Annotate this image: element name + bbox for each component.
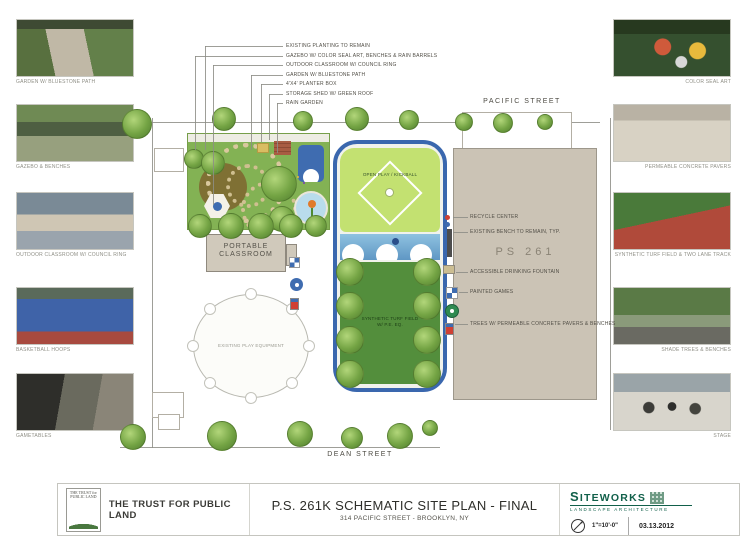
photo-gametables: GAMETABLES: [16, 373, 134, 439]
site-plan-sheet: GARDEN W/ BLUESTONE PATH GAZEBO & BENCHE…: [0, 0, 747, 560]
photo-thumbnail: [613, 373, 731, 431]
play-border-scallop: [245, 288, 257, 300]
street-tree-icon: [399, 110, 419, 130]
field-tree-icon: [413, 258, 441, 286]
wave-mural: [340, 234, 440, 260]
leader-line: [205, 46, 206, 150]
play-border-scallop: [204, 377, 216, 389]
street-tree-icon: [207, 421, 237, 451]
photo-thumbnail: [613, 19, 731, 77]
existing-structure-outline: [154, 148, 184, 172]
photo-caption: SHADE TREES & BENCHES: [613, 347, 731, 353]
street-tree-icon: [212, 107, 236, 131]
photo-caption: BASKETBALL HOOPS: [16, 347, 134, 353]
photo-turf-track: SYNTHETIC TURF FIELD & TWO LANE TRACK: [613, 192, 731, 258]
street-tree-icon: [493, 113, 513, 133]
leader-line: [205, 46, 283, 47]
firm-rule: [570, 505, 692, 506]
photo-caption: OUTDOOR CLASSROOM W/ COUNCIL RING: [16, 252, 134, 258]
color-seal-slide-icon: [298, 145, 324, 182]
photo-gazebo-benches: GAZEBO & BENCHES: [16, 104, 134, 170]
portable-classroom-label: PORTABLE CLASSROOM: [206, 243, 286, 260]
sheet-subtitle: 314 PACIFIC STREET - BROOKLYN, NY: [340, 515, 469, 522]
street-tree-icon: [287, 421, 313, 447]
drinking-fountain-icon: [443, 265, 455, 274]
photo-thumbnail: [613, 192, 731, 250]
callout-trees-pavers: TREES W/ PERMEABLE CONCRETE PAVERS & BEN…: [470, 321, 616, 327]
leader-line: [459, 292, 468, 293]
photo-basketball-hoops: BASKETBALL HOOPS: [16, 287, 134, 353]
garden-tree-icon: [248, 213, 274, 239]
play-border-scallop: [204, 303, 216, 315]
garden-tree-icon: [305, 215, 327, 237]
pitcher-circle: [385, 188, 394, 197]
painted-game-checker-icon: [289, 257, 300, 268]
photo-caption: SYNTHETIC TURF FIELD & TWO LANE TRACK: [613, 252, 731, 258]
photo-permeable-pavers: PERMEABLE CONCRETE PAVERS: [613, 104, 731, 170]
painted-game-hopscotch-icon: [290, 298, 299, 310]
street-tree-icon: [345, 107, 369, 131]
painted-game-compass-icon: [445, 304, 459, 318]
logo-text: THE TRUST for PUBLIC LAND: [67, 489, 100, 501]
street-tree-icon: [120, 424, 146, 450]
firm-name: SITEWORKS: [570, 489, 646, 504]
callout-painted-games: PAINTED GAMES: [470, 289, 513, 295]
photo-caption: STAGE: [613, 433, 731, 439]
field-tree-icon: [336, 360, 364, 388]
photo-thumbnail: [16, 373, 134, 431]
divider: [628, 517, 629, 535]
dean-street-curb-line: [120, 447, 440, 448]
leader-line: [277, 103, 278, 153]
school-building-label: PS 261: [478, 246, 573, 258]
field-tree-icon: [336, 258, 364, 286]
garden-tree-icon: [218, 213, 244, 239]
north-arrow-icon: [570, 518, 586, 534]
sheet-title: P.S. 261K SCHEMATIC SITE PLAN - FINAL: [272, 498, 538, 513]
leader-line: [456, 272, 468, 273]
firm-section: SITEWORKS LANDSCAPE ARCHITECTURE 1"=10'-…: [559, 484, 739, 535]
field-tree-icon: [413, 292, 441, 320]
recycle-center-icon: [447, 229, 452, 257]
callout-garden-path: GARDEN W/ BLUESTONE PATH: [286, 72, 365, 78]
callout-planter-box: 4'X4' PLANTER BOX: [286, 81, 337, 87]
leader-line: [195, 56, 283, 57]
leader-line: [213, 65, 283, 66]
callout-recycle-center: RECYCLE CENTER: [470, 214, 518, 220]
callout-gazebo: GAZEBO W/ COLOR SEAL ART, BENCHES & RAIN…: [286, 53, 437, 59]
callout-drinking-fountain: ACCESSIBLE DRINKING FOUNTAIN: [470, 269, 559, 275]
leader-line: [261, 84, 283, 85]
street-tree-icon: [341, 427, 363, 449]
leader-line: [213, 65, 214, 205]
field-tree-icon: [336, 292, 364, 320]
scale-text: 1"=10'-0": [592, 523, 618, 529]
garden-tree-icon: [188, 214, 212, 238]
photo-thumbnail: [16, 192, 134, 250]
flower-icon: [308, 200, 316, 208]
date-text: 03.13.2012: [639, 523, 674, 530]
building-wing-outline: [462, 112, 572, 150]
existing-play-label: EXISTING PLAY EQUIPMENT: [196, 343, 306, 348]
garden-tree-icon: [261, 166, 297, 202]
dean-street-label: DEAN STREET: [310, 451, 410, 458]
property-line-east: [610, 118, 611, 430]
leader-line: [195, 56, 196, 150]
photo-outdoor-classroom: OUTDOOR CLASSROOM W/ COUNCIL RING: [16, 192, 134, 258]
photo-thumbnail: [16, 104, 134, 162]
callout-existing-planting: EXISTING PLANTING TO REMAIN: [286, 43, 370, 49]
gazebo-center: [213, 202, 222, 211]
painted-game-hopscotch-icon: [445, 323, 454, 335]
photo-shade-trees: SHADE TREES & BENCHES: [613, 287, 731, 353]
site-marker-blue-icon: [445, 222, 450, 227]
street-tree-icon: [537, 114, 553, 130]
pacific-street-label: PACIFIC STREET: [462, 98, 582, 105]
photo-caption: PERMEABLE CONCRETE PAVERS: [613, 164, 731, 170]
leader-line: [453, 232, 468, 233]
client-section: THE TRUST for PUBLIC LAND THE TRUST FOR …: [58, 484, 250, 535]
callout-storage-shed: STORAGE SHED W/ GREEN ROOF: [286, 91, 373, 97]
leader-line: [455, 324, 468, 325]
title-block: THE TRUST for PUBLIC LAND THE TRUST FOR …: [57, 483, 740, 536]
street-tree-icon: [422, 420, 438, 436]
photo-thumbnail: [613, 104, 731, 162]
leader-line: [251, 75, 252, 150]
existing-structure-outline: [158, 414, 180, 430]
field-tree-icon: [413, 360, 441, 388]
photo-caption: GAZEBO & BENCHES: [16, 164, 134, 170]
photo-caption: GARDEN W/ BLUESTONE PATH: [16, 79, 134, 85]
play-border-scallop: [245, 392, 257, 404]
callout-rain-garden: RAIN GARDEN: [286, 100, 323, 106]
field-tree-icon: [336, 326, 364, 354]
leader-line: [261, 84, 262, 142]
photo-garden-bluestone-path: GARDEN W/ BLUESTONE PATH: [16, 19, 134, 85]
firm-subtitle: LANDSCAPE ARCHITECTURE: [570, 507, 729, 512]
logo-hill-icon: [69, 517, 98, 529]
field-tree-icon: [413, 326, 441, 354]
site-marker-red-icon: [445, 215, 450, 220]
portable-classroom-label-line1: PORTABLE: [206, 243, 286, 251]
photo-caption: COLOR SEAL ART: [613, 79, 731, 85]
street-tree-icon: [293, 111, 313, 131]
callout-existing-bench: EXISTING BENCH TO REMAIN, TYP.: [470, 229, 560, 235]
photo-thumbnail: [16, 287, 134, 345]
photo-thumbnail: [16, 19, 134, 77]
garden-tree-icon: [279, 214, 303, 238]
leader-line: [269, 94, 270, 140]
trust-for-public-land-logo: THE TRUST for PUBLIC LAND: [66, 488, 101, 532]
portable-classroom-label-line2: CLASSROOM: [206, 251, 286, 259]
photo-color-seal-art: COLOR SEAL ART: [613, 19, 731, 85]
play-border-scallop: [286, 377, 298, 389]
open-play-label: OPEN PLAY / KICKBALL: [340, 172, 440, 177]
photo-stage: STAGE: [613, 373, 731, 439]
open-play-field: OPEN PLAY / KICKBALL: [340, 148, 440, 232]
painted-game-checker-icon: [446, 287, 458, 299]
photo-caption: GAMETABLES: [16, 433, 134, 439]
leader-line: [269, 94, 283, 95]
street-tree-icon: [122, 109, 152, 139]
bluestone-path: [188, 134, 330, 142]
swimmer-figure: [392, 238, 399, 245]
firm-logo-grid-icon: [650, 492, 664, 504]
painted-game-compass-icon: [290, 278, 303, 291]
client-name: THE TRUST FOR PUBLIC LAND: [109, 499, 241, 521]
street-tree-icon: [387, 423, 413, 449]
photo-thumbnail: [613, 287, 731, 345]
street-tree-icon: [455, 113, 473, 131]
title-section: P.S. 261K SCHEMATIC SITE PLAN - FINAL 31…: [250, 484, 559, 535]
leader-line: [251, 75, 283, 76]
leader-line: [453, 217, 468, 218]
planter-box-icon: [257, 143, 269, 153]
callout-outdoor-classroom: OUTDOOR CLASSROOM W/ COUNCIL RING: [286, 62, 397, 68]
